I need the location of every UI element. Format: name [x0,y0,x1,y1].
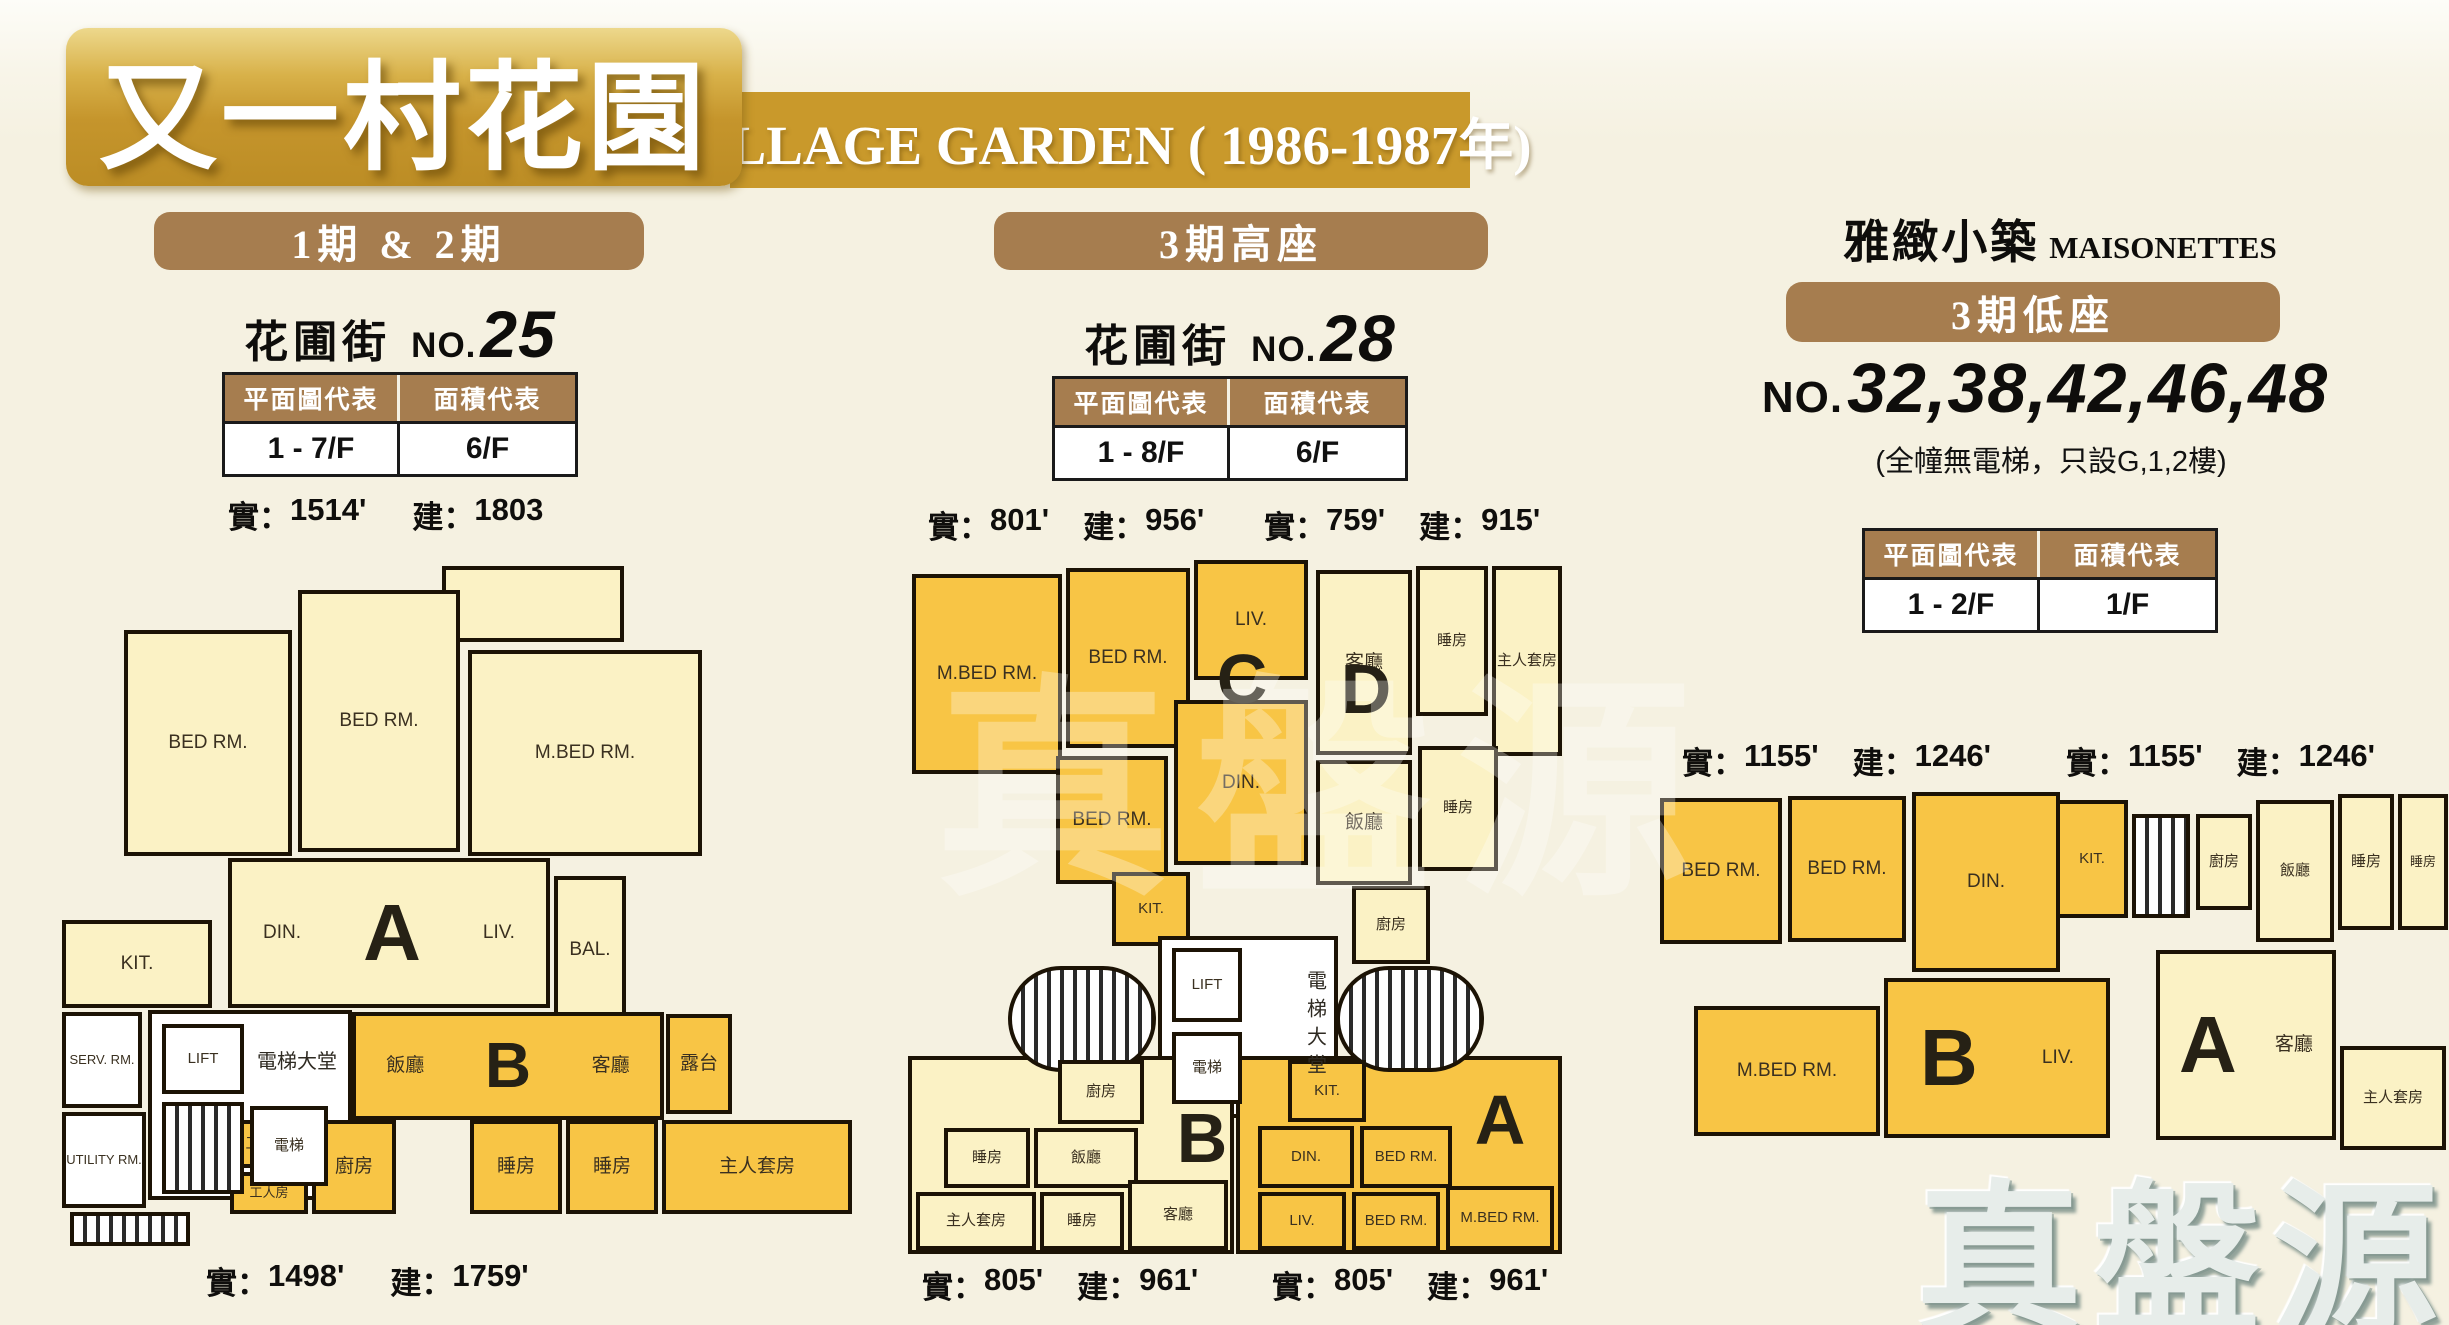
project-title-en-band: VILLAGE GARDEN ( 1986-1987年) [730,92,1470,188]
room-label: LIV. [1289,1213,1314,1230]
room-label: 客廳 [2275,1034,2313,1055]
maisonettes-title: 雅緻小築 MAISONETTES [1840,206,2280,272]
room-label: M.BED RM. [535,742,635,763]
brand-watermark-faint: 真盤源 [935,600,1718,941]
saleable-key: 實： [1264,502,1326,547]
project-title: 又一村花園 [99,22,709,193]
street-number: 28 [1320,300,1395,376]
gross-key: 建： [2237,738,2299,783]
unit-a-living: A 客廳 [2156,950,2336,1140]
lift-shaft: LIFT [1172,948,1242,1022]
room-bedroom: 睡房 [566,1120,658,1214]
gross-value: 961' [1489,1262,1548,1307]
room-label: BED RM. [1375,1149,1438,1166]
table-cell-plan-floors: 1 - 7/F [225,421,400,474]
table-header-plan: 平面圖代表 [1055,379,1230,425]
saleable-value: 1514' [290,492,366,537]
area-label-no25-top: 實：1514' 建：1803 [228,492,543,537]
room-dining: 飯廳 [2256,800,2334,942]
room-bedroom: 睡房 [470,1120,562,1214]
room-bedroom: 睡房 [2398,794,2448,930]
room-bathroom [442,566,624,642]
phase-banner-3: 3期低座 [1786,282,2280,342]
floor-table-3: 平面圖代表 面積代表 1 - 2/F 1/F [1862,528,2218,633]
room-bedroom: 睡房 [1040,1192,1124,1250]
room-terrace: 露台 [666,1014,732,1114]
room-label: 睡房 [2351,854,2381,871]
street-number: 32,38,42,46,48 [1847,348,2328,428]
area-label-unit-d: 實：759' 建：915' [1264,502,1540,547]
room-bedroom: BED RM. [1360,1126,1452,1188]
no-lift-note: (全幢無電梯，只設G,1,2樓) [1846,438,2256,480]
table-cell-plan-floors: 1 - 2/F [1865,577,2040,630]
lift-lobby-label: 電梯大堂 [1296,946,1332,1106]
table-cell-area-floor: 6/F [400,421,575,474]
unit-letter-a: A [1470,1080,1530,1160]
room-bedroom: BED RM. [298,590,460,852]
gross-value: 1246' [2299,738,2375,783]
room-label: 電梯 [1192,1060,1222,1077]
area-label-no25-bottom: 實：1498' 建：1759' [206,1258,529,1303]
room-label: 露台 [680,1053,718,1074]
saleable-value: 805' [1334,1262,1393,1307]
unit-letter-b: B [1172,1098,1232,1178]
room-label: BED RM. [1807,858,1886,879]
room-kitchen: 廚房 [2196,814,2252,910]
gross-key: 建： [1077,1262,1139,1307]
gross-key: 建： [1427,1262,1489,1307]
room-label: 客廳 [1163,1207,1193,1224]
table-cell-area-floor: 1/F [2040,577,2215,630]
area-label-unit-b-p2: 實：805' 建：961' [922,1262,1198,1307]
room-label: BED RM. [339,710,418,731]
table-header-area: 面積代表 [2040,531,2215,577]
room-label: 睡房 [1067,1213,1097,1230]
gross-value: 1246' [1915,738,1991,783]
table-cell-area-floor: 6/F [1230,425,1405,478]
street-number: 25 [480,296,555,372]
room-master-bedroom: M.BED RM. [1694,1006,1880,1136]
floor-table-2: 平面圖代表 面積代表 1 - 8/F 6/F [1052,376,1408,481]
saleable-key: 實： [928,502,990,547]
room-label: 主人套房 [946,1213,1006,1230]
street-address-no28: 花圃街 NO. 28 [1050,300,1430,376]
room-label: 飯廳 [386,1055,424,1076]
saleable-value: 1155' [1744,738,1819,783]
staircase [70,1212,190,1246]
room-master-bedroom: M.BED RM. [468,650,702,856]
room-label: BED RM. [168,732,247,753]
room-label: 睡房 [972,1150,1002,1167]
room-label: 工人房 [249,1186,288,1201]
room-label: BAL. [569,939,610,960]
room-label: KIT. [121,953,154,974]
room-kitchen: 廚房 [1058,1060,1144,1124]
street-no-label: NO. [1251,330,1316,370]
floor-table-1: 平面圖代表 面積代表 1 - 7/F 6/F [222,372,578,477]
area-label-unit-a-p2: 實：805' 建：961' [1272,1262,1548,1307]
brand-watermark: 真盤源 [1916,1126,2449,1325]
floorplan-sheet: VILLAGE GARDEN ( 1986-1987年) 又一村花園 1期 & … [0,0,2449,1325]
room-label: LIFT [1192,977,1223,994]
street-address-no25: 花圃街 NO. 25 [210,296,590,372]
area-label-unit-b-p3: 實：1155' 建：1246' [1682,738,1991,783]
room-label: LIFT [188,1051,219,1068]
room-master-bedroom: M.BED RM. [1446,1186,1554,1250]
staircase [1336,966,1484,1072]
lift-shaft: 電梯 [250,1106,328,1186]
project-title-en: VILLAGE GARDEN ( 1986-1987年) [668,100,1531,180]
room-bedroom: BED RM. [124,630,292,856]
street-name: 花圃街 [1084,310,1231,374]
gross-key: 建： [412,492,474,537]
unit-letter-b: B [1920,1013,1978,1103]
street-numbers-low-block: NO. 32,38,42,46,48 [1760,348,2330,428]
room-bedroom: 睡房 [2338,794,2394,930]
room-master-suite: 主人套房 [662,1120,852,1214]
room-label: DIN. [263,922,301,943]
gross-key: 建： [1419,502,1481,547]
unit-b-living: B LIV. [1884,978,2110,1138]
room-servants-room: SERV. RM. [62,1012,142,1108]
table-header-area: 面積代表 [1230,379,1405,425]
saleable-key: 實： [206,1258,268,1303]
maisonettes-title-zh: 雅緻小築 [1843,206,2039,272]
room-label: M.BED RM. [1737,1060,1837,1081]
gross-value: 956' [1145,502,1204,547]
saleable-key: 實： [228,492,290,537]
room-label: 睡房 [497,1156,535,1177]
lift-shaft: LIFT [162,1024,244,1094]
room-master-suite: 主人套房 [916,1192,1036,1250]
room-living: 客廳 [1128,1180,1228,1250]
lift-shaft: 電梯 [1172,1032,1242,1104]
saleable-value: 759' [1326,502,1385,547]
gross-value: 1803 [474,492,543,537]
room-balcony: BAL. [554,876,626,1024]
street-no-label: NO. [411,326,476,366]
gross-key: 建： [1853,738,1915,783]
maisonettes-title-en: MAISONETTES [2049,230,2276,266]
gross-key: 建： [390,1258,452,1303]
saleable-key: 實： [922,1262,984,1307]
project-title-block: 又一村花園 [66,28,742,186]
room-label: 主人套房 [719,1156,795,1177]
area-label-unit-a-p3: 實：1155' 建：1246' [2066,738,2375,783]
gross-value: 915' [1481,502,1540,547]
gross-value: 961' [1139,1262,1198,1307]
saleable-value: 1155' [2128,738,2203,783]
street-name: 花圃街 [244,306,391,370]
room-label: LIV. [483,922,515,943]
unit-b-living-dining: 飯廳 B 客廳 [352,1012,664,1120]
room-label: M.BED RM. [1460,1210,1539,1227]
gross-value: 1759' [452,1258,528,1303]
saleable-key: 實： [2066,738,2128,783]
saleable-value: 1498' [268,1258,344,1303]
gross-key: 建： [1083,502,1145,547]
room-label: DIN. [1967,871,2005,892]
room-label: 廚房 [1086,1084,1116,1101]
phase-banner-2: 3期高座 [994,212,1488,270]
room-bedroom: 睡房 [944,1128,1030,1188]
room-label: 廚房 [2209,854,2239,871]
room-living: LIV. [1258,1192,1346,1250]
table-cell-plan-floors: 1 - 8/F [1055,425,1230,478]
unit-letter-a: A [363,888,421,978]
staircase [2132,814,2190,918]
room-label: 飯廳 [1071,1150,1101,1167]
street-no-label: NO. [1762,373,1843,423]
room-label: KIT. [2079,851,2105,868]
saleable-value: 801' [990,502,1049,547]
saleable-key: 實： [1272,1262,1334,1307]
room-kitchen: KIT. [62,920,212,1008]
room-label: 電梯 [274,1138,304,1155]
room-label: DIN. [1291,1149,1321,1166]
room-label: 客廳 [592,1055,630,1076]
lift-lobby-label: 電梯大堂 [252,1022,342,1102]
unit-letter-a: A [2179,1000,2237,1090]
room-label: BED RM. [1365,1213,1428,1230]
staircase [162,1102,244,1194]
room-label: 飯廳 [2280,863,2310,880]
room-label: LIV. [2042,1047,2074,1068]
room-bedroom: BED RM. [1352,1192,1440,1250]
room-label: 廚房 [335,1156,373,1177]
room-label: 主人套房 [2363,1090,2423,1107]
room-label: 睡房 [2410,855,2436,870]
staircase [1008,966,1156,1072]
room-label: SERV. RM. [69,1053,134,1068]
table-header-plan: 平面圖代表 [225,375,400,421]
unit-letter-b: B [485,1030,531,1102]
room-dining: 飯廳 [1034,1128,1138,1188]
room-dining: DIN. [1258,1126,1354,1188]
room-label: UTILITY RM. [66,1153,142,1168]
saleable-value: 805' [984,1262,1043,1307]
table-header-area: 面積代表 [400,375,575,421]
phase-banner-1: 1期 & 2期 [154,212,644,270]
room-kitchen: KIT. [2056,800,2128,918]
room-dining: DIN. [1912,792,2060,972]
area-label-unit-c: 實：801' 建：956' [928,502,1204,547]
table-header-plan: 平面圖代表 [1865,531,2040,577]
room-bedroom: BED RM. [1788,796,1906,942]
room-label: 睡房 [593,1156,631,1177]
unit-a-living-dining: DIN. A LIV. [228,858,550,1008]
room-utility: UTILITY RM. [62,1112,146,1208]
